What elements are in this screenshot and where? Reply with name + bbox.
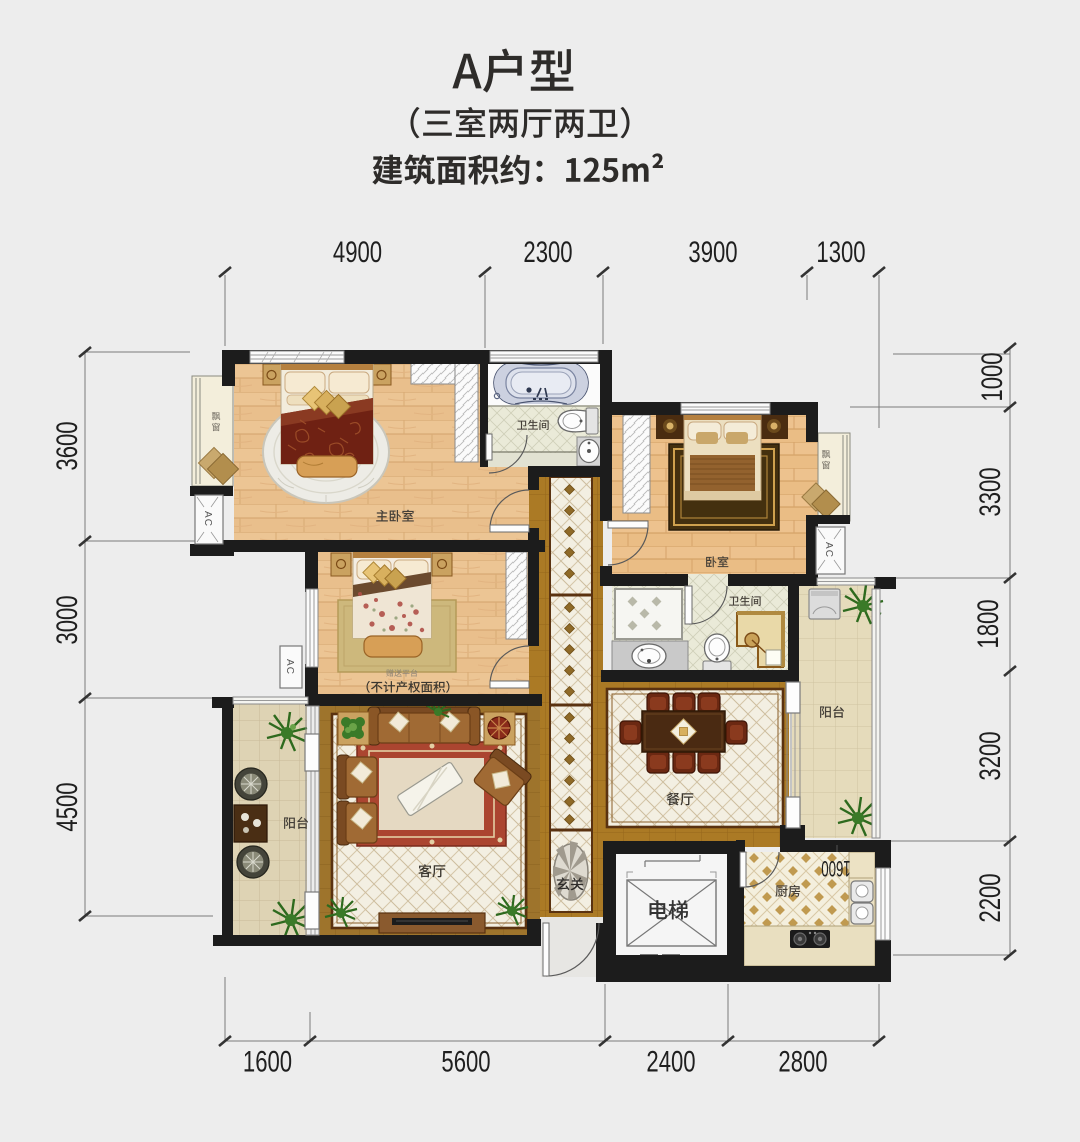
svg-text:2400: 2400 bbox=[646, 1044, 695, 1078]
svg-text:5600: 5600 bbox=[441, 1044, 490, 1078]
svg-text:3300: 3300 bbox=[973, 467, 1007, 516]
svg-text:3600: 3600 bbox=[50, 421, 84, 470]
svg-text:3000: 3000 bbox=[50, 595, 84, 644]
svg-text:1300: 1300 bbox=[816, 235, 865, 269]
svg-text:4500: 4500 bbox=[50, 782, 84, 831]
svg-text:1800: 1800 bbox=[971, 599, 1005, 648]
svg-text:2300: 2300 bbox=[523, 235, 572, 269]
svg-text:4900: 4900 bbox=[333, 235, 382, 269]
svg-text:1000: 1000 bbox=[975, 352, 1009, 401]
svg-text:AC: AC bbox=[823, 542, 834, 558]
svg-text:2200: 2200 bbox=[973, 873, 1007, 922]
svg-text:2800: 2800 bbox=[778, 1044, 827, 1078]
svg-text:3200: 3200 bbox=[973, 731, 1007, 780]
svg-text:3900: 3900 bbox=[688, 235, 737, 269]
svg-text:1600: 1600 bbox=[821, 856, 850, 880]
svg-text:AC: AC bbox=[202, 511, 213, 527]
svg-text:AC: AC bbox=[284, 659, 295, 675]
svg-text:1600: 1600 bbox=[243, 1044, 292, 1078]
